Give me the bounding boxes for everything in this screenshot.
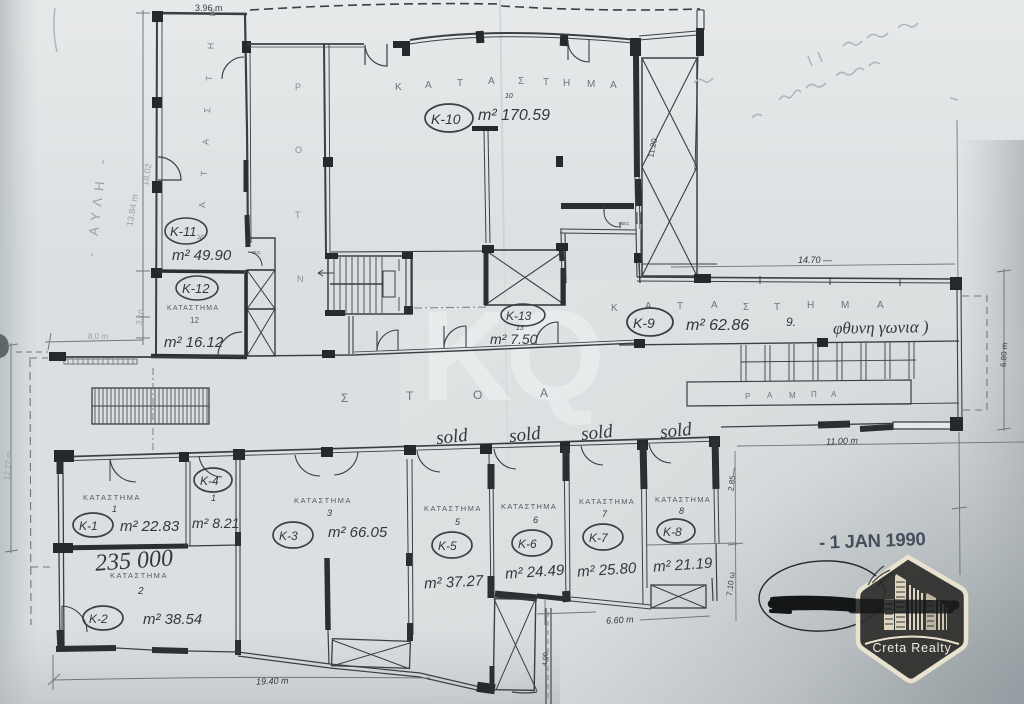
svg-text:Α: Α	[425, 80, 432, 91]
svg-text:m² 38.54: m² 38.54	[143, 611, 202, 628]
svg-text:sold: sold	[508, 423, 542, 447]
svg-text:m² 8.21: m² 8.21	[192, 515, 239, 531]
svg-text:Π: Π	[811, 390, 817, 399]
svg-text:ΚΑΤΑΣΤΗΜΑ: ΚΑΤΑΣΤΗΜΑ	[294, 496, 352, 505]
svg-text:Α: Α	[610, 80, 617, 91]
svg-text:3: 3	[327, 508, 332, 518]
svg-text:Κ-6: Κ-6	[518, 537, 537, 551]
svg-text:Μ: Μ	[841, 300, 849, 311]
svg-text:Η: Η	[807, 300, 814, 311]
svg-text:Ρ: Ρ	[295, 82, 301, 92]
svg-text:9.: 9.	[786, 315, 796, 329]
svg-text:Σ: Σ	[518, 76, 524, 87]
svg-text:ΚΑΤΑΣΤΗΜΑ: ΚΑΤΑΣΤΗΜΑ	[167, 305, 219, 312]
svg-text:Κ-2: Κ-2	[89, 612, 108, 626]
svg-text:1: 1	[112, 504, 117, 514]
svg-text:Α: Α	[488, 76, 495, 87]
svg-text:12: 12	[190, 316, 199, 325]
svg-text:Κ-1: Κ-1	[79, 519, 98, 533]
svg-text:Κ-5: Κ-5	[438, 539, 457, 553]
svg-text:Η: Η	[563, 78, 570, 89]
svg-text:w.c.: w.c.	[251, 250, 262, 256]
svg-text:Ρ: Ρ	[745, 392, 750, 401]
svg-text:Κ-10: Κ-10	[431, 111, 461, 127]
svg-text:Μ: Μ	[789, 391, 796, 400]
svg-text:11.00 m: 11.00 m	[826, 435, 859, 446]
svg-text:Κ-9: Κ-9	[633, 315, 655, 331]
svg-text:Α: Α	[540, 386, 548, 400]
svg-text:6.80 m: 6.80 m	[999, 342, 1009, 367]
svg-text:Κ-3: Κ-3	[279, 529, 298, 543]
svg-text:10: 10	[505, 93, 513, 100]
svg-text:Α: Α	[711, 300, 718, 311]
svg-text:φθυνη γωνια ): φθυνη γωνια )	[833, 317, 929, 338]
svg-text:m² 170.59: m² 170.59	[478, 107, 550, 124]
svg-text:m² 16.12: m² 16.12	[164, 334, 224, 351]
svg-text:Κ-7: Κ-7	[589, 531, 609, 545]
svg-text:ΚΑΤΑΣΤΗΜΑ: ΚΑΤΑΣΤΗΜΑ	[579, 497, 635, 506]
svg-text:ΚΑΤΑΣΤΗΜΑ: ΚΑΤΑΣΤΗΜΑ	[110, 571, 168, 580]
svg-text:Creta Realty: Creta Realty	[872, 641, 951, 655]
svg-text:Α: Α	[645, 301, 652, 312]
svg-text:Κ-4: Κ-4	[200, 474, 219, 488]
svg-text:Κ-13: Κ-13	[506, 309, 532, 323]
svg-text:sold: sold	[659, 419, 693, 443]
svg-text:Τ: Τ	[677, 301, 683, 312]
svg-text:1: 1	[211, 493, 216, 503]
svg-text:ΚΑΤΑΣΤΗΜΑ: ΚΑΤΑΣΤΗΜΑ	[655, 495, 711, 504]
svg-text:Α: Α	[877, 300, 884, 311]
svg-text:ΚΑΤΑΣΤΗΜΑ: ΚΑΤΑΣΤΗΜΑ	[501, 502, 557, 511]
svg-text:m² 37.27: m² 37.27	[424, 572, 485, 592]
svg-text:Κ-11: Κ-11	[170, 224, 197, 239]
svg-text:Τ: Τ	[295, 210, 301, 220]
svg-text:Ο: Ο	[473, 388, 482, 402]
svg-text:Κ-12: Κ-12	[182, 281, 210, 296]
svg-text:6.60 m: 6.60 m	[606, 614, 635, 625]
svg-text:Τ: Τ	[457, 78, 463, 89]
svg-text:m² 49.90: m² 49.90	[172, 247, 232, 264]
svg-text:m² 62.86: m² 62.86	[686, 317, 749, 334]
svg-text:sold: sold	[435, 425, 469, 449]
svg-text:Σ: Σ	[341, 391, 348, 405]
svg-text:- 1 JAN 1990: - 1 JAN 1990	[819, 528, 926, 553]
svg-text:ΚΑΤΑΣΤΗΜΑ: ΚΑΤΑΣΤΗΜΑ	[424, 504, 482, 513]
svg-text:Κ: Κ	[395, 82, 402, 93]
svg-text:w.c: w.c	[620, 221, 629, 227]
svg-text:ΚΑΤΑΣΤΗΜΑ: ΚΑΤΑΣΤΗΜΑ	[83, 493, 141, 502]
svg-text:Τ: Τ	[774, 302, 780, 313]
svg-text:sold: sold	[580, 421, 614, 445]
svg-text:Μ: Μ	[587, 79, 595, 90]
svg-text:19.40 m: 19.40 m	[256, 675, 289, 686]
svg-text:m² 22.83: m² 22.83	[120, 518, 180, 535]
svg-text:6: 6	[533, 515, 538, 525]
svg-text:Τ: Τ	[543, 77, 549, 88]
svg-text:Ν: Ν	[297, 274, 304, 284]
svg-text:m² 66.05: m² 66.05	[328, 524, 388, 541]
svg-text:Κ-8: Κ-8	[663, 525, 682, 539]
svg-text:8.0 m: 8.0 m	[88, 332, 108, 341]
svg-text:8: 8	[679, 506, 684, 516]
svg-text:Ο: Ο	[295, 145, 302, 155]
svg-text:Α: Α	[767, 391, 773, 400]
svg-text:4.00: 4.00	[542, 652, 550, 666]
svg-text:Τ: Τ	[406, 389, 414, 403]
svg-text:Σ: Σ	[743, 302, 749, 313]
svg-text:14.70 —: 14.70 —	[798, 255, 833, 265]
svg-text:2: 2	[137, 586, 144, 597]
svg-text:Α: Α	[831, 390, 837, 399]
svg-text:Κ: Κ	[611, 303, 618, 314]
